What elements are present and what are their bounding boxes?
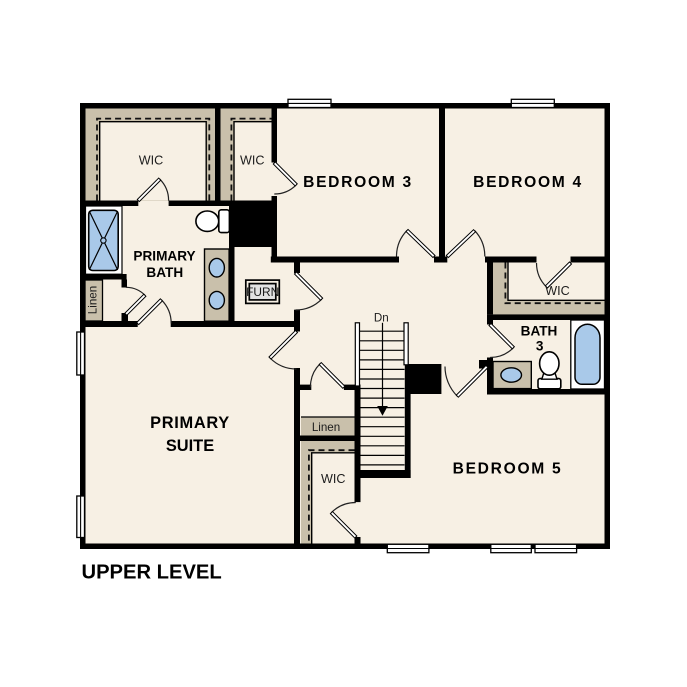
svg-text:Dn: Dn bbox=[374, 311, 389, 324]
svg-text:WIC: WIC bbox=[321, 472, 345, 486]
svg-text:BATH: BATH bbox=[146, 265, 183, 280]
svg-text:WIC: WIC bbox=[240, 154, 264, 168]
svg-text:BATH: BATH bbox=[521, 323, 558, 338]
svg-text:PRIMARY: PRIMARY bbox=[133, 248, 195, 263]
svg-text:PRIMARY: PRIMARY bbox=[150, 414, 230, 432]
svg-text:UPPER LEVEL: UPPER LEVEL bbox=[82, 562, 222, 584]
svg-text:Linen: Linen bbox=[87, 286, 100, 314]
svg-text:WIC: WIC bbox=[545, 284, 569, 298]
svg-text:Linen: Linen bbox=[312, 421, 340, 434]
svg-text:WIC: WIC bbox=[139, 154, 163, 168]
svg-text:3: 3 bbox=[536, 339, 544, 354]
svg-text:BEDROOM 3: BEDROOM 3 bbox=[303, 174, 413, 191]
svg-text:BEDROOM 4: BEDROOM 4 bbox=[473, 174, 583, 191]
svg-text:SUITE: SUITE bbox=[166, 437, 214, 455]
svg-text:BEDROOM 5: BEDROOM 5 bbox=[453, 461, 563, 478]
svg-text:FURN: FURN bbox=[246, 285, 279, 299]
